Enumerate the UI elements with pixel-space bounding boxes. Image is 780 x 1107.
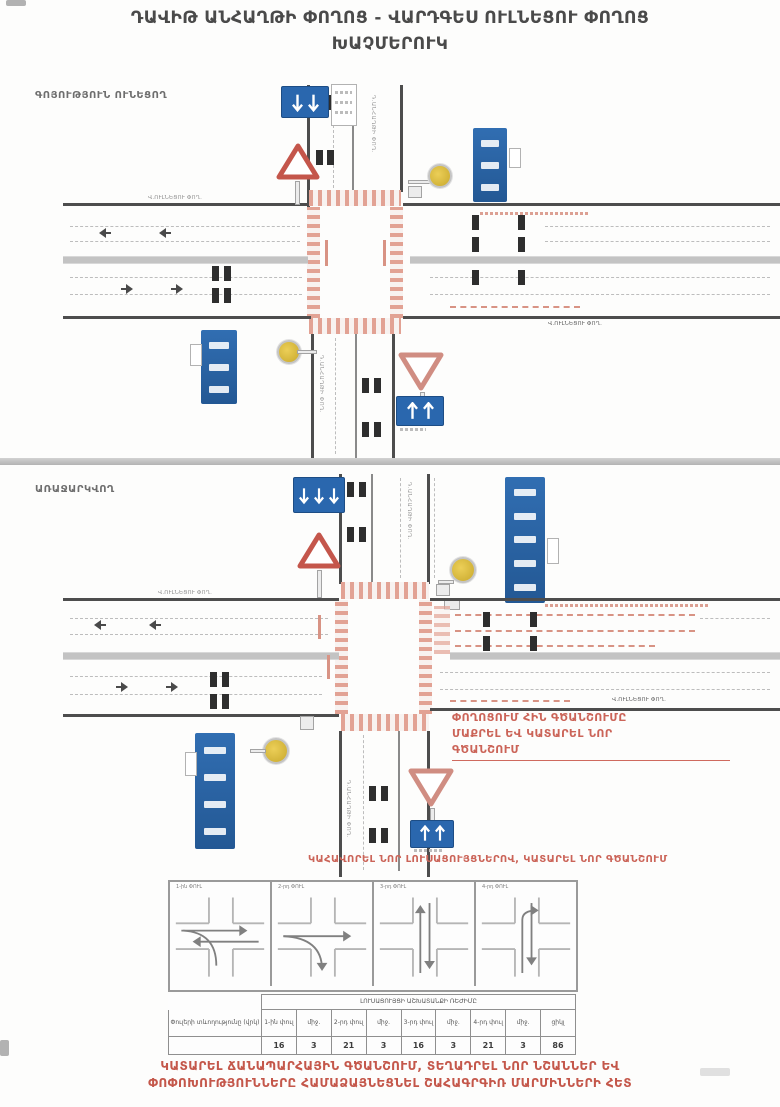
lane-direction-arrow — [166, 686, 176, 688]
proposed-section-label: ԱՌԱՋԱՐԿՎՈՂ — [35, 484, 115, 495]
lane-direction-arrow — [161, 232, 171, 234]
lane-direction-arrow — [96, 624, 106, 626]
lane-dashed-line — [700, 618, 770, 619]
lane-arrow-marking — [212, 288, 219, 303]
sign-white-mark — [204, 828, 226, 835]
red-dimension-mark — [327, 655, 330, 679]
channelization-marking — [434, 606, 450, 654]
sign-caption-micro-text — [400, 428, 426, 431]
median-line — [410, 256, 780, 264]
street-name-sign-vertical — [195, 733, 235, 849]
road-edge — [63, 316, 311, 319]
crosswalk-marking — [419, 600, 432, 714]
sign-white-mark — [481, 162, 500, 169]
phase-diagram — [276, 892, 368, 984]
lane-dashed-line — [70, 294, 302, 295]
lane-arrow-marking — [224, 266, 231, 281]
lane-arrow-marking — [359, 527, 366, 542]
red-dimension-mark — [325, 240, 328, 266]
down-arrow-icon — [292, 92, 303, 112]
lane-arrow-marking — [224, 288, 231, 303]
table-column-header: միջ. — [436, 1010, 471, 1037]
signal-controller-box — [436, 584, 450, 596]
give-way-sign — [408, 768, 454, 808]
lane-dashed-line — [70, 694, 322, 695]
crosswalk-marking — [390, 207, 403, 318]
road-edge — [63, 598, 339, 601]
down-arrow-icon — [329, 485, 339, 505]
phase-label: 1-ին ՓՈՒԼ — [176, 884, 202, 890]
sign-white-mark — [204, 747, 226, 754]
crosswalk-marking — [307, 207, 320, 318]
lane-direction-arrow — [121, 288, 131, 290]
red-dimension-mark — [383, 240, 386, 266]
street-name-label-vertical: Դ.ԱՆՀԱՂԹԻ ՓՈՂ. — [406, 482, 412, 577]
new-marking-dashed — [455, 614, 695, 616]
street-name-label: Վ.ՈՒԼՆԵՑՈՒ ՓՈՂ. — [612, 697, 666, 703]
footer-note: ԿԱՏԱՐԵԼ ՃԱՆԱՊԱՐՀԱՅԻՆ ԳԾԱՆՇՈՒՄ, ՏԵՂԱԴՐԵԼ … — [50, 1058, 730, 1092]
new-marking-dashed — [450, 306, 580, 308]
lane-line — [355, 334, 357, 458]
street-name-sign-vertical — [505, 477, 545, 603]
lane-direction-sign — [281, 86, 329, 118]
lane-arrow-marking — [530, 612, 537, 627]
lane-direction-sign-vertical — [473, 128, 507, 202]
marking-note-line2: ՄԱՔՐԵԼ ԵՎ ԿԱՏԱՐԵԼ ՆՈՐ — [452, 726, 613, 742]
table-value: 21 — [331, 1037, 366, 1055]
table-column-header: միջ. — [366, 1010, 401, 1037]
lane-dashed-line — [70, 241, 300, 242]
street-name-label: Վ.ՈՒԼՆԵՑՈՒ ՓՈՂ. — [548, 321, 602, 327]
red-micro-text — [545, 604, 710, 607]
sign-white-mark — [481, 140, 500, 147]
lane-direction-arrow — [101, 232, 111, 234]
table-value: 3 — [366, 1037, 401, 1055]
road-edge — [403, 316, 780, 319]
street-name-label: Վ.ՈՒԼՆԵՑՈՒ ՓՈՂ. — [148, 195, 202, 201]
up-arrow-icon — [407, 402, 418, 421]
phase-cell-divider — [372, 882, 374, 986]
sign-white-mark — [514, 513, 536, 520]
lane-arrow-marking — [347, 527, 354, 542]
table-value: 16 — [262, 1037, 297, 1055]
lane-dashed-line — [440, 672, 770, 673]
table-title: ԼՈՒՍԱՑՈՒՅՑԻ ԱՇԽԱՏԱՆՔԻ ՌԵԺԻՄԸ — [262, 995, 576, 1010]
lane-arrow-marking — [381, 786, 388, 801]
sign-info-plate — [185, 752, 197, 776]
sign-white-mark — [204, 774, 226, 781]
signal-note: ԿԱՀԱՎՈՐԵԼ ՆՈՐ ԼՈՒՍԱՑՈՒՅՑՆԵՐՈՎ, ԿԱՏԱՐԵԼ Ն… — [308, 852, 668, 868]
lane-direction-sign — [293, 477, 345, 513]
lane-arrow-marking — [483, 612, 490, 627]
down-arrow-icon — [314, 485, 324, 505]
table-column-header: միջ. — [296, 1010, 331, 1037]
road-edge — [403, 203, 780, 206]
signal-controller-box — [300, 716, 314, 730]
note-underline — [452, 760, 730, 761]
lane-dashed-line — [70, 634, 328, 635]
phase-diagram — [480, 892, 572, 984]
lane-arrow-marking — [210, 672, 217, 687]
down-arrow-icon — [299, 485, 309, 505]
traffic-signal-icon — [428, 164, 452, 188]
phase-cell-divider — [270, 882, 272, 986]
sign-info-plate — [331, 84, 357, 126]
road-edge — [63, 714, 339, 717]
warning-triangle-sign — [297, 532, 341, 570]
phase-label: 2-րդ ՓՈՒԼ — [278, 884, 304, 890]
sign-info-plate — [547, 538, 559, 564]
table-value: 3 — [296, 1037, 331, 1055]
lane-arrow-marking — [210, 694, 217, 709]
phase-diagram — [378, 892, 470, 984]
street-name-label-vertical: Դ.ԱՆՀԱՂԹԻ ՓՈՂ. — [318, 355, 324, 445]
scan-smudge — [6, 0, 26, 6]
new-marking-dashed — [450, 700, 570, 702]
lane-dashed-line — [440, 689, 770, 690]
marking-note-line1: ՓՈՂՈՑՈՒՄ ՀԻՆ ԳԾԱՆՇՈՒՄԸ — [452, 710, 627, 726]
street-name-label-vertical: Դ.ԱՆՀԱՂԹԻ ՓՈՂ. — [370, 95, 376, 190]
table-value: 16 — [401, 1037, 436, 1055]
lane-direction-sign-vertical — [201, 330, 237, 404]
warning-triangle-sign — [276, 143, 320, 181]
table-value: 86 — [541, 1037, 576, 1055]
road-edge — [400, 85, 403, 192]
traffic-signal-icon — [263, 738, 289, 764]
table-column-header: 1-ին փուլ — [262, 1010, 297, 1037]
table-column-header: ցիկլ — [541, 1010, 576, 1037]
lane-arrow-marking — [359, 482, 366, 497]
lane-dashed-line — [430, 294, 770, 295]
lane-dashed-line — [70, 676, 322, 677]
sign-white-mark — [204, 801, 226, 808]
lane-dashed-line — [430, 277, 770, 278]
signal-controller-box — [408, 186, 422, 198]
lane-dashed-line — [400, 478, 401, 578]
lane-arrow-marking — [362, 422, 369, 437]
traffic-scheme-page: ԴԱՎԻԹ ԱՆՀԱՂԹԻ ՓՈՂՈՑ - ՎԱՐԴԳԵՍ ՈՒԼՆԵՑՈՒ Փ… — [0, 0, 780, 1107]
crosswalk-marking — [341, 582, 429, 599]
footer-note-line2: ՓՈՓՈԽՈՒԹՅՈՒՆՆԵՐԸ ՀԱՄԱՁԱՅՆԵՑՆԵԼ ՇԱՀԱԳՐԳԻՌ… — [50, 1075, 730, 1092]
lane-line — [398, 731, 400, 871]
lane-direction-sign — [396, 396, 444, 426]
lane-arrow-marking — [222, 694, 229, 709]
lane-arrow-marking — [369, 786, 376, 801]
lane-arrow-marking — [518, 237, 525, 252]
sign-white-mark — [209, 386, 229, 393]
lane-arrow-marking — [518, 270, 525, 285]
crosswalk-marking — [341, 714, 429, 731]
lane-arrow-marking — [362, 378, 369, 393]
median-line — [63, 652, 339, 660]
lane-dashed-line — [545, 226, 770, 227]
street-name-label: Վ.ՈՒԼՆԵՑՈՒ ՓՈՂ. — [158, 590, 212, 596]
lane-direction-sign — [410, 820, 454, 848]
sign-post — [317, 570, 322, 598]
sign-white-mark — [514, 584, 536, 591]
sign-white-mark — [514, 489, 536, 496]
table-value: 3 — [506, 1037, 541, 1055]
lane-arrow-marking — [347, 482, 354, 497]
road-edge — [63, 203, 308, 206]
table-column-header: 3-րդ փուլ — [401, 1010, 436, 1037]
sign-info-plate — [509, 148, 521, 168]
lane-direction-arrow — [116, 686, 126, 688]
lane-arrow-marking — [472, 215, 479, 230]
lane-arrow-marking — [374, 378, 381, 393]
marking-note-line3: ԳԾԱՆՇՈՒՄ — [452, 742, 519, 758]
lane-dashed-line — [363, 735, 364, 870]
new-marking-dashed — [455, 630, 695, 632]
lane-direction-arrow — [171, 288, 181, 290]
lane-dashed-line — [70, 226, 300, 227]
page-title-line1: ԴԱՎԻԹ ԱՆՀԱՂԹԻ ՓՈՂՈՑ - ՎԱՐԴԳԵՍ ՈՒԼՆԵՑՈՒ Փ… — [0, 8, 780, 28]
table-value: 21 — [471, 1037, 506, 1055]
table-blank-cell — [169, 1037, 262, 1055]
table-value: 3 — [436, 1037, 471, 1055]
sign-info-plate — [190, 344, 202, 366]
lane-arrow-marking — [369, 828, 376, 843]
median-line — [450, 652, 780, 660]
up-arrow-icon — [420, 825, 430, 843]
up-arrow-icon — [423, 402, 434, 421]
signal-timing-table: ԼՈՒՍԱՑՈՒՅՑԻ ԱՇԽԱՏԱՆՔԻ ՌԵԺԻՄԸ Փուլերի տևո… — [168, 994, 576, 1055]
signal-bracket — [297, 350, 317, 354]
road-edge — [430, 598, 780, 601]
lane-dashed-line — [335, 338, 336, 454]
phase-label: 3-րդ ՓՈՒԼ — [380, 884, 406, 890]
phase-label: 4-րդ ՓՈՒԼ — [482, 884, 508, 890]
existing-section-label: ԳՈՅՈՒԹՅՈՒՆ ՈՒՆԵՑՈՂ — [35, 90, 167, 101]
sign-post — [295, 181, 300, 205]
table-blank-cell — [169, 995, 262, 1010]
red-dimension-mark — [318, 615, 321, 639]
sign-white-mark — [481, 184, 500, 191]
phase-diagram — [174, 892, 266, 984]
table-column-header: 2-րդ փուլ — [331, 1010, 366, 1037]
lane-arrow-marking — [472, 237, 479, 252]
lane-dashed-line — [434, 478, 435, 578]
lane-arrow-marking — [374, 422, 381, 437]
sign-white-mark — [514, 560, 536, 567]
page-title-line2: ԽԱՉՄԵՐՈՒԿ — [0, 34, 780, 54]
red-micro-text — [480, 212, 590, 215]
table-column-header: 4-րդ փուլ — [471, 1010, 506, 1037]
table-column-header: միջ. — [506, 1010, 541, 1037]
sign-white-mark — [514, 536, 536, 543]
footer-note-line1: ԿԱՏԱՐԵԼ ՃԱՆԱՊԱՐՀԱՅԻՆ ԳԾԱՆՇՈՒՄ, ՏԵՂԱԴՐԵԼ … — [50, 1058, 730, 1075]
lane-dashed-line — [70, 277, 302, 278]
lane-line — [371, 474, 373, 586]
road-edge — [427, 474, 430, 584]
table-row-label: Փուլերի տևողությունը (վրկ) — [169, 1010, 262, 1037]
lane-arrow-marking — [327, 150, 334, 165]
phase-cell-divider — [474, 882, 476, 986]
lane-direction-arrow — [151, 624, 161, 626]
lane-arrow-marking — [381, 828, 388, 843]
lane-dashed-line — [70, 618, 328, 619]
scan-smudge — [0, 1040, 9, 1056]
lane-arrow-marking — [472, 270, 479, 285]
lane-arrow-marking — [212, 266, 219, 281]
give-way-sign — [398, 352, 444, 392]
crosswalk-marking — [309, 190, 401, 206]
sign-white-mark — [209, 342, 229, 349]
road-edge — [392, 334, 395, 458]
section-divider — [0, 458, 780, 465]
median-line — [63, 256, 308, 264]
lane-arrow-marking — [483, 636, 490, 651]
lane-dashed-line — [545, 241, 770, 242]
lane-arrow-marking — [518, 215, 525, 230]
sign-white-mark — [209, 364, 229, 371]
signal-bracket — [250, 749, 266, 753]
lane-arrow-marking — [530, 636, 537, 651]
lane-arrow-marking — [222, 672, 229, 687]
crosswalk-marking — [309, 318, 401, 334]
up-arrow-icon — [435, 825, 445, 843]
down-arrow-icon — [308, 92, 319, 112]
